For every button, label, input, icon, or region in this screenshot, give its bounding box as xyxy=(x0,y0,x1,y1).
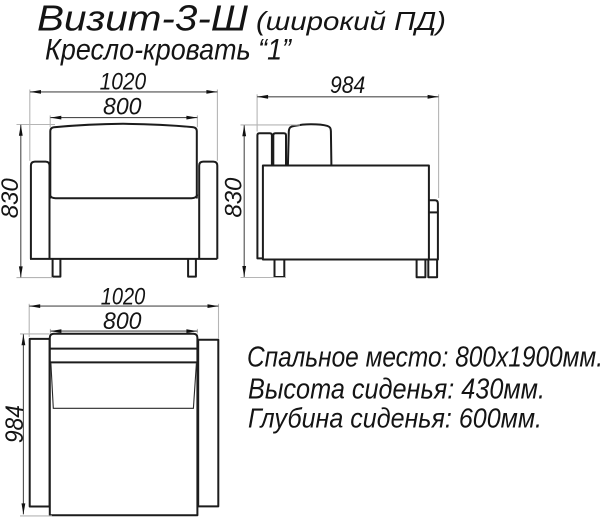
svg-text:Высота сиденья: 430мм.: Высота сиденья: 430мм. xyxy=(248,374,545,406)
svg-text:984: 984 xyxy=(330,72,365,99)
svg-text:Глубина сиденья: 600мм.: Глубина сиденья: 600мм. xyxy=(248,403,542,434)
svg-text:984: 984 xyxy=(1,405,29,443)
svg-text:800: 800 xyxy=(103,308,142,335)
svg-text:(широкий ПД): (широкий ПД) xyxy=(256,6,446,36)
svg-text:830: 830 xyxy=(220,177,247,218)
svg-text:Спальное место: 800х1900мм.: Спальное место: 800х1900мм. xyxy=(247,342,600,374)
svg-text:1020: 1020 xyxy=(100,68,147,95)
svg-text:830: 830 xyxy=(0,178,24,219)
svg-text:Кресло-кровать “1”: Кресло-кровать “1” xyxy=(45,34,293,67)
svg-text:800: 800 xyxy=(103,93,142,120)
svg-text:1020: 1020 xyxy=(101,283,146,310)
